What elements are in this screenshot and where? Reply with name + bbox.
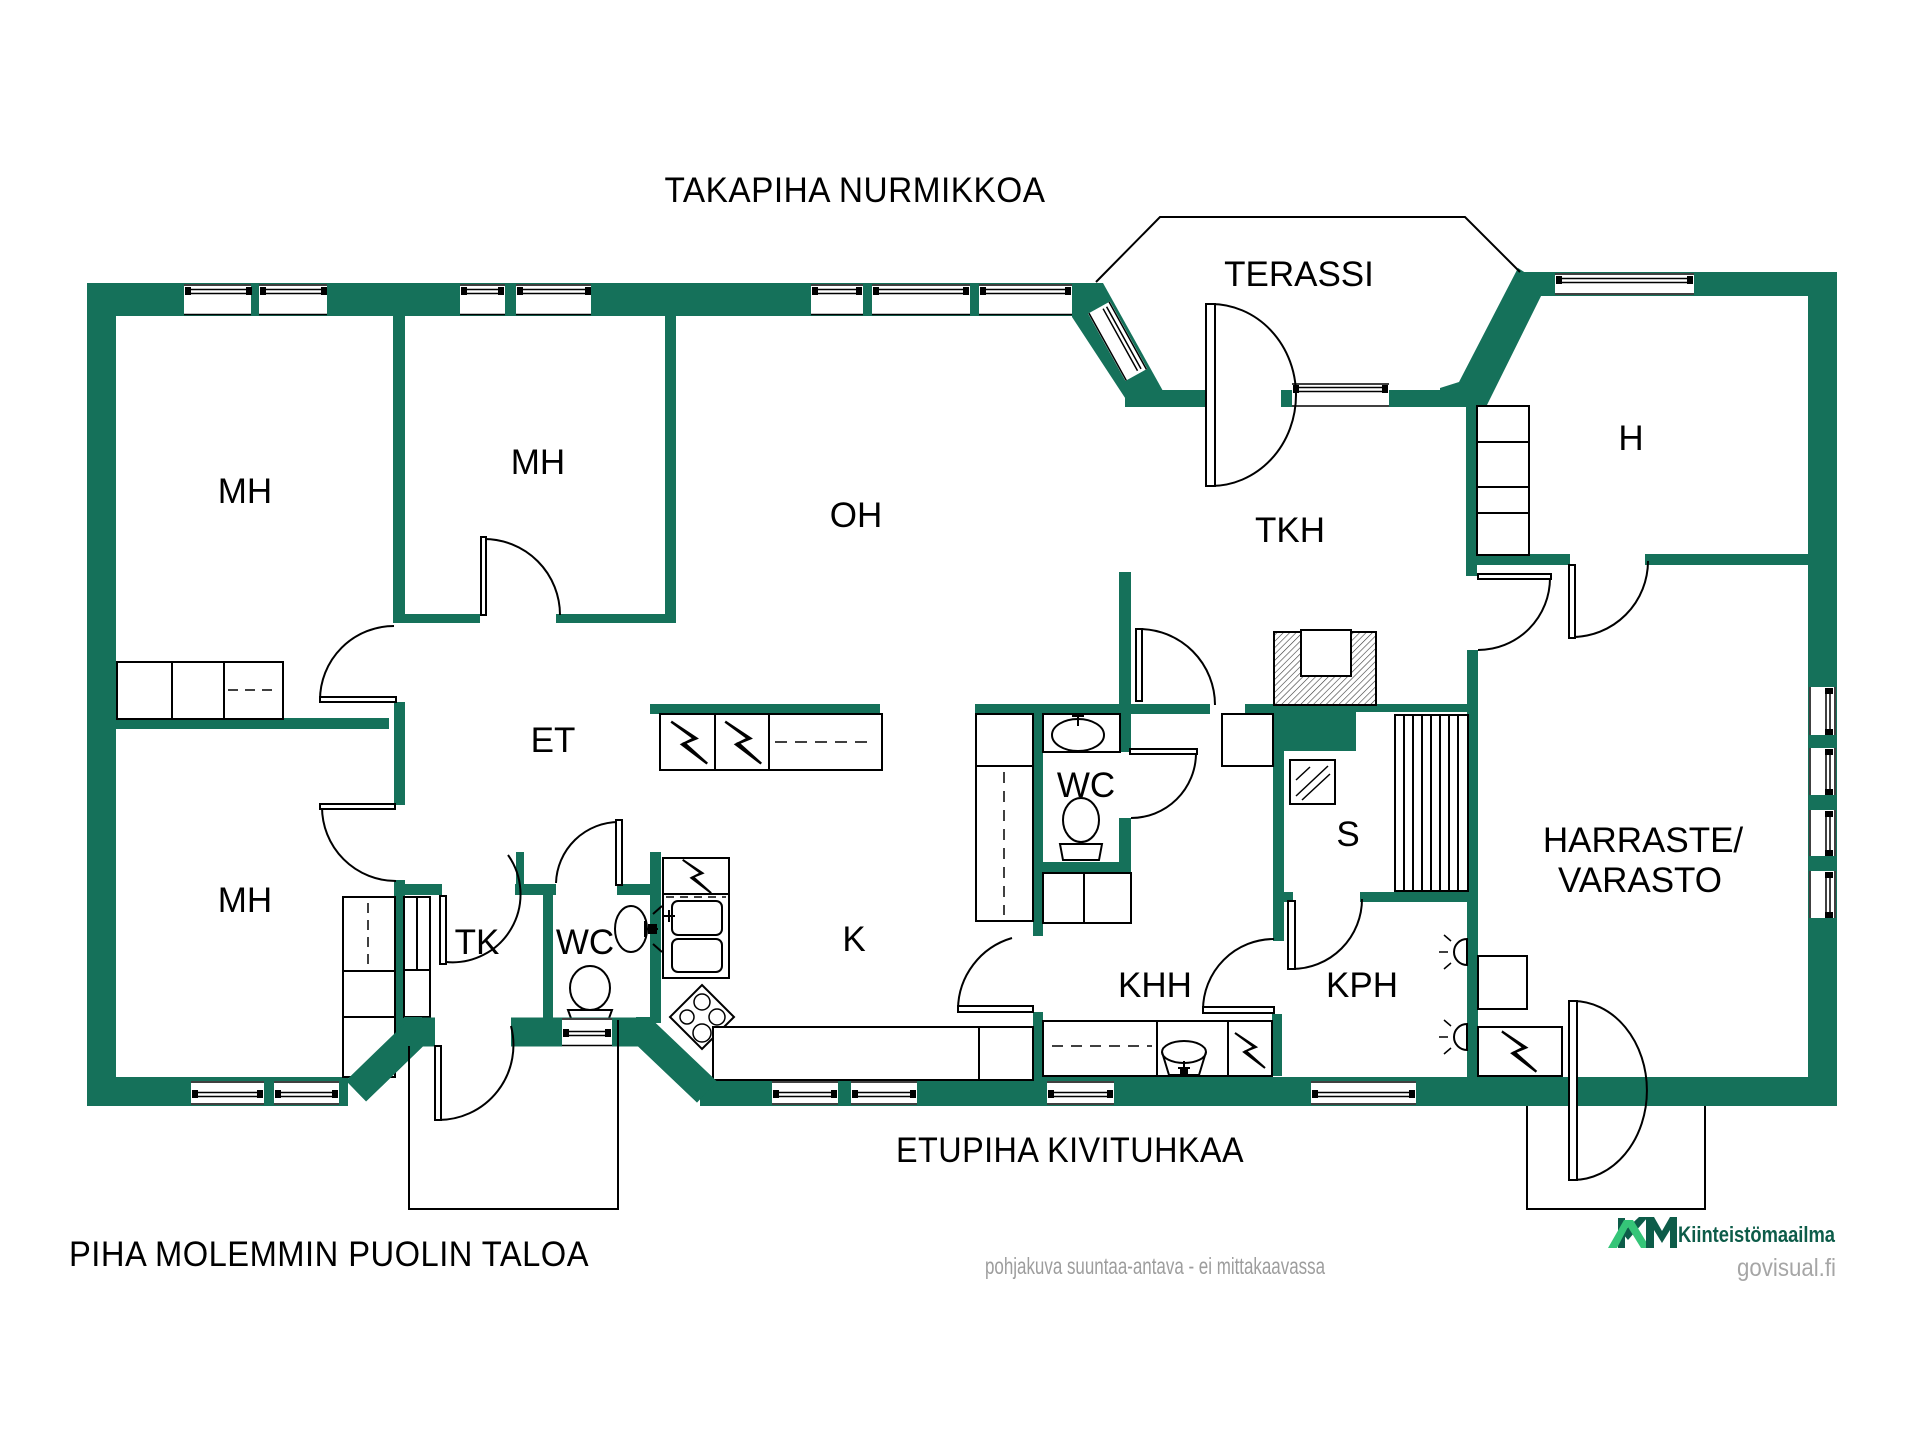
svg-text:KPH: KPH [1326, 966, 1398, 1005]
svg-text:OH: OH [830, 496, 883, 535]
svg-text:MH: MH [218, 472, 272, 511]
svg-text:PIHA MOLEMMIN PUOLIN TALOA: PIHA MOLEMMIN PUOLIN TALOA [69, 1235, 589, 1274]
svg-text:ET: ET [531, 721, 576, 760]
svg-text:MH: MH [218, 881, 272, 920]
svg-text:TK: TK [455, 923, 500, 962]
svg-text:ETUPIHA KIVITUHKAA: ETUPIHA KIVITUHKAA [896, 1131, 1244, 1170]
svg-text:TAKAPIHA NURMIKKOA: TAKAPIHA NURMIKKOA [665, 171, 1046, 210]
svg-text:VARASTO: VARASTO [1558, 861, 1722, 900]
svg-text:WC: WC [556, 923, 614, 962]
svg-text:H: H [1618, 419, 1643, 458]
svg-text:govisual.fi: govisual.fi [1737, 1254, 1836, 1282]
svg-text:KHH: KHH [1118, 966, 1192, 1005]
svg-text:TKH: TKH [1255, 511, 1325, 550]
svg-text:S: S [1336, 815, 1359, 854]
svg-text:TERASSI: TERASSI [1224, 255, 1374, 294]
svg-text:HARRASTE/: HARRASTE/ [1543, 821, 1744, 860]
svg-text:K: K [842, 920, 865, 959]
svg-text:WC: WC [1057, 766, 1115, 805]
svg-text:MH: MH [511, 443, 565, 482]
svg-text:Kiinteistömaailma: Kiinteistömaailma [1678, 1222, 1836, 1247]
svg-text:pohjakuva suuntaa-antava - ei: pohjakuva suuntaa-antava - ei mittakaava… [985, 1253, 1325, 1279]
